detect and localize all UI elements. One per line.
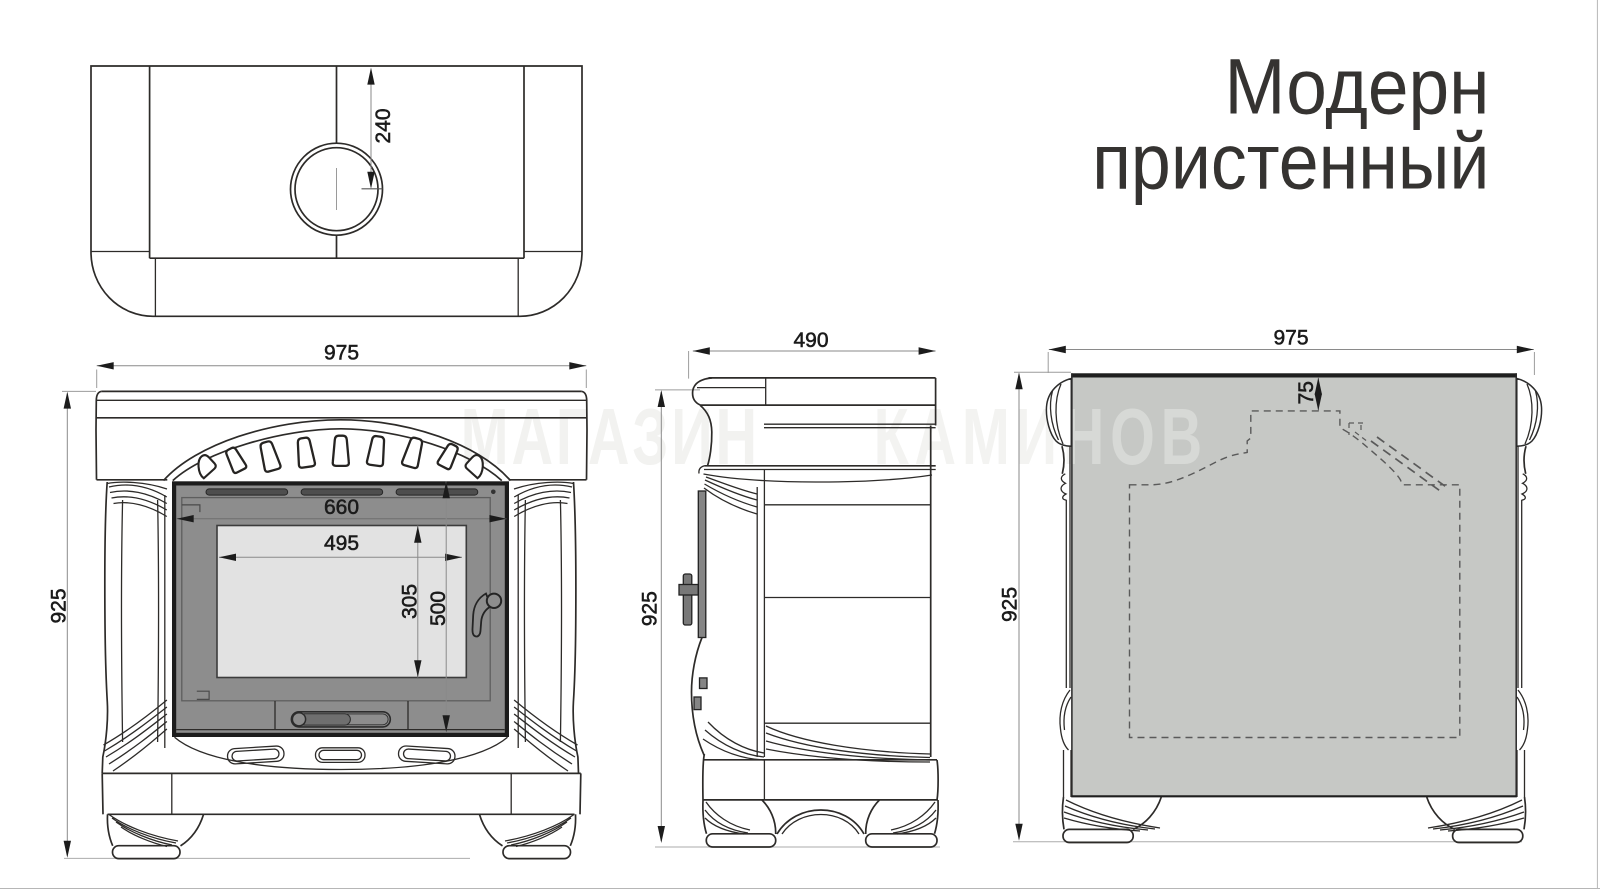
- svg-text:495: 495: [324, 532, 359, 555]
- svg-text:925: 925: [639, 591, 662, 626]
- svg-text:75: 75: [1295, 381, 1318, 404]
- svg-text:пристенный: пристенный: [1092, 117, 1489, 205]
- svg-text:305: 305: [398, 584, 421, 619]
- svg-text:975: 975: [1273, 327, 1308, 350]
- svg-text:925: 925: [48, 588, 71, 623]
- svg-text:660: 660: [324, 496, 359, 519]
- svg-text:240: 240: [372, 108, 395, 143]
- svg-text:975: 975: [324, 342, 359, 365]
- svg-text:490: 490: [793, 329, 828, 352]
- svg-text:500: 500: [427, 591, 450, 626]
- svg-text:925: 925: [999, 587, 1022, 622]
